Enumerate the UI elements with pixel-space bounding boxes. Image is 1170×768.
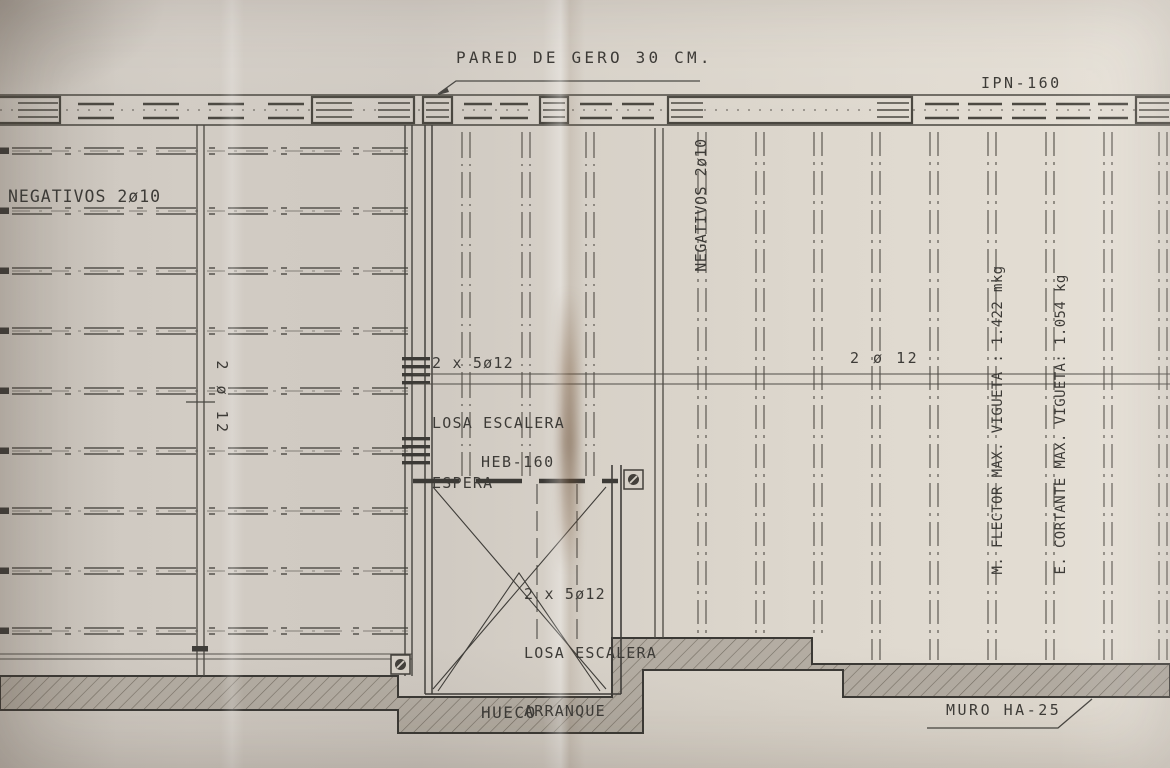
label-heb-160: HEB-160 bbox=[481, 453, 555, 471]
stats-line1: M. FLECTOR MAX. VIGUETA : 1.422 mkg bbox=[988, 265, 1009, 574]
stats-line2: E. CORTANTE MAX. VIGUETA: 1.054 kg bbox=[1051, 265, 1072, 574]
arranque-line1: 2 x 5ø12 bbox=[524, 585, 657, 605]
scanned-drawing-sheet: PARED DE GERO 30 CM. IPN-160 NEGATIVOS 2… bbox=[0, 0, 1170, 768]
label-ipn-160: IPN-160 bbox=[981, 74, 1062, 92]
section-detail-marker bbox=[624, 470, 643, 489]
hueco-line1: HUECO bbox=[481, 699, 570, 726]
label-negativos-middle: NEGATIVOS 2ø10 bbox=[692, 138, 710, 271]
espera-line1: 2 x 5ø12 bbox=[432, 353, 565, 373]
label-2d12-vertical: 2 ø 12 bbox=[213, 360, 231, 435]
stair-zone-left-edge bbox=[425, 125, 432, 694]
label-losa-escalera-espera: 2 x 5ø12 LOSA ESCALERA ESPERA bbox=[432, 313, 565, 533]
top-beam-band bbox=[0, 95, 1170, 125]
espera-line2: LOSA ESCALERA bbox=[432, 413, 565, 433]
label-2d12-horizontal: 2 ø 12 bbox=[850, 349, 919, 367]
label-negativos-left: NEGATIVOS 2ø10 bbox=[8, 187, 161, 206]
espera-rebar-marks bbox=[402, 357, 430, 464]
label-hueco-escalera: HUECO ESCALERA bbox=[481, 645, 570, 768]
label-muro-ha25: MURO HA-25 bbox=[946, 701, 1061, 719]
label-vigueta-stats: M. FLECTOR MAX. VIGUETA : 1.422 mkg E. C… bbox=[946, 265, 1114, 574]
espera-line3: ESPERA bbox=[432, 473, 565, 493]
left-joist-field bbox=[0, 148, 412, 660]
leader-pared bbox=[438, 81, 700, 95]
label-pared-de-gero: PARED DE GERO 30 CM. bbox=[456, 48, 713, 67]
section-detail-marker bbox=[391, 655, 410, 674]
